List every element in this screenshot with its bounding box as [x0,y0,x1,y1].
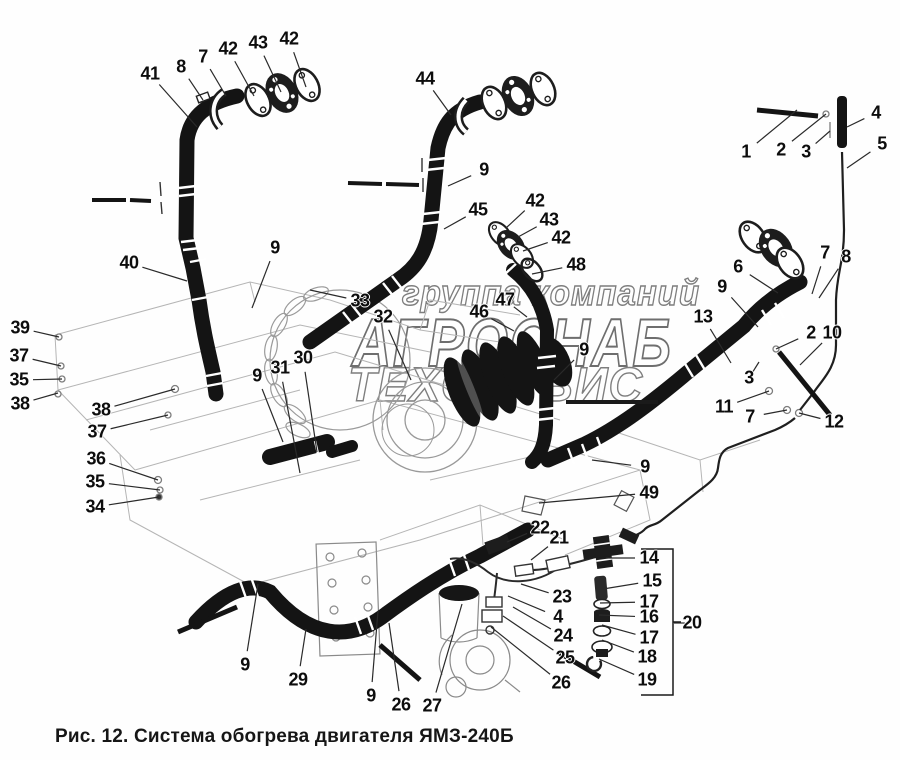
canister [439,585,479,642]
pipe-1 [757,110,818,116]
centerline-marks [160,158,423,214]
watermark-underline [566,400,658,404]
wreath-emblem [263,284,410,441]
hose-13 [548,282,800,460]
stud-b [380,645,420,680]
engine-block-outline [55,282,760,585]
hose-40-41 [186,96,237,394]
figure-caption: Рис. 12. Система обогрева двигателя ЯМЗ-… [55,726,514,748]
stud-c [558,652,600,677]
dash-marks [92,183,419,201]
bracket-20 [641,549,681,695]
water-pump [439,630,520,697]
hose-4 [837,96,847,148]
hardware-column [581,533,625,671]
hose-elbow-30 [332,446,352,452]
fuel-line-5 [632,152,844,538]
gaskets-and-flanges [196,65,808,285]
parts-diagram [0,0,900,760]
hose-44-45 [310,102,480,342]
bracket-49 [522,496,545,515]
figure-canvas: группа компаний АГРОСНАБ ТЕХСЕРВИС [0,0,900,760]
